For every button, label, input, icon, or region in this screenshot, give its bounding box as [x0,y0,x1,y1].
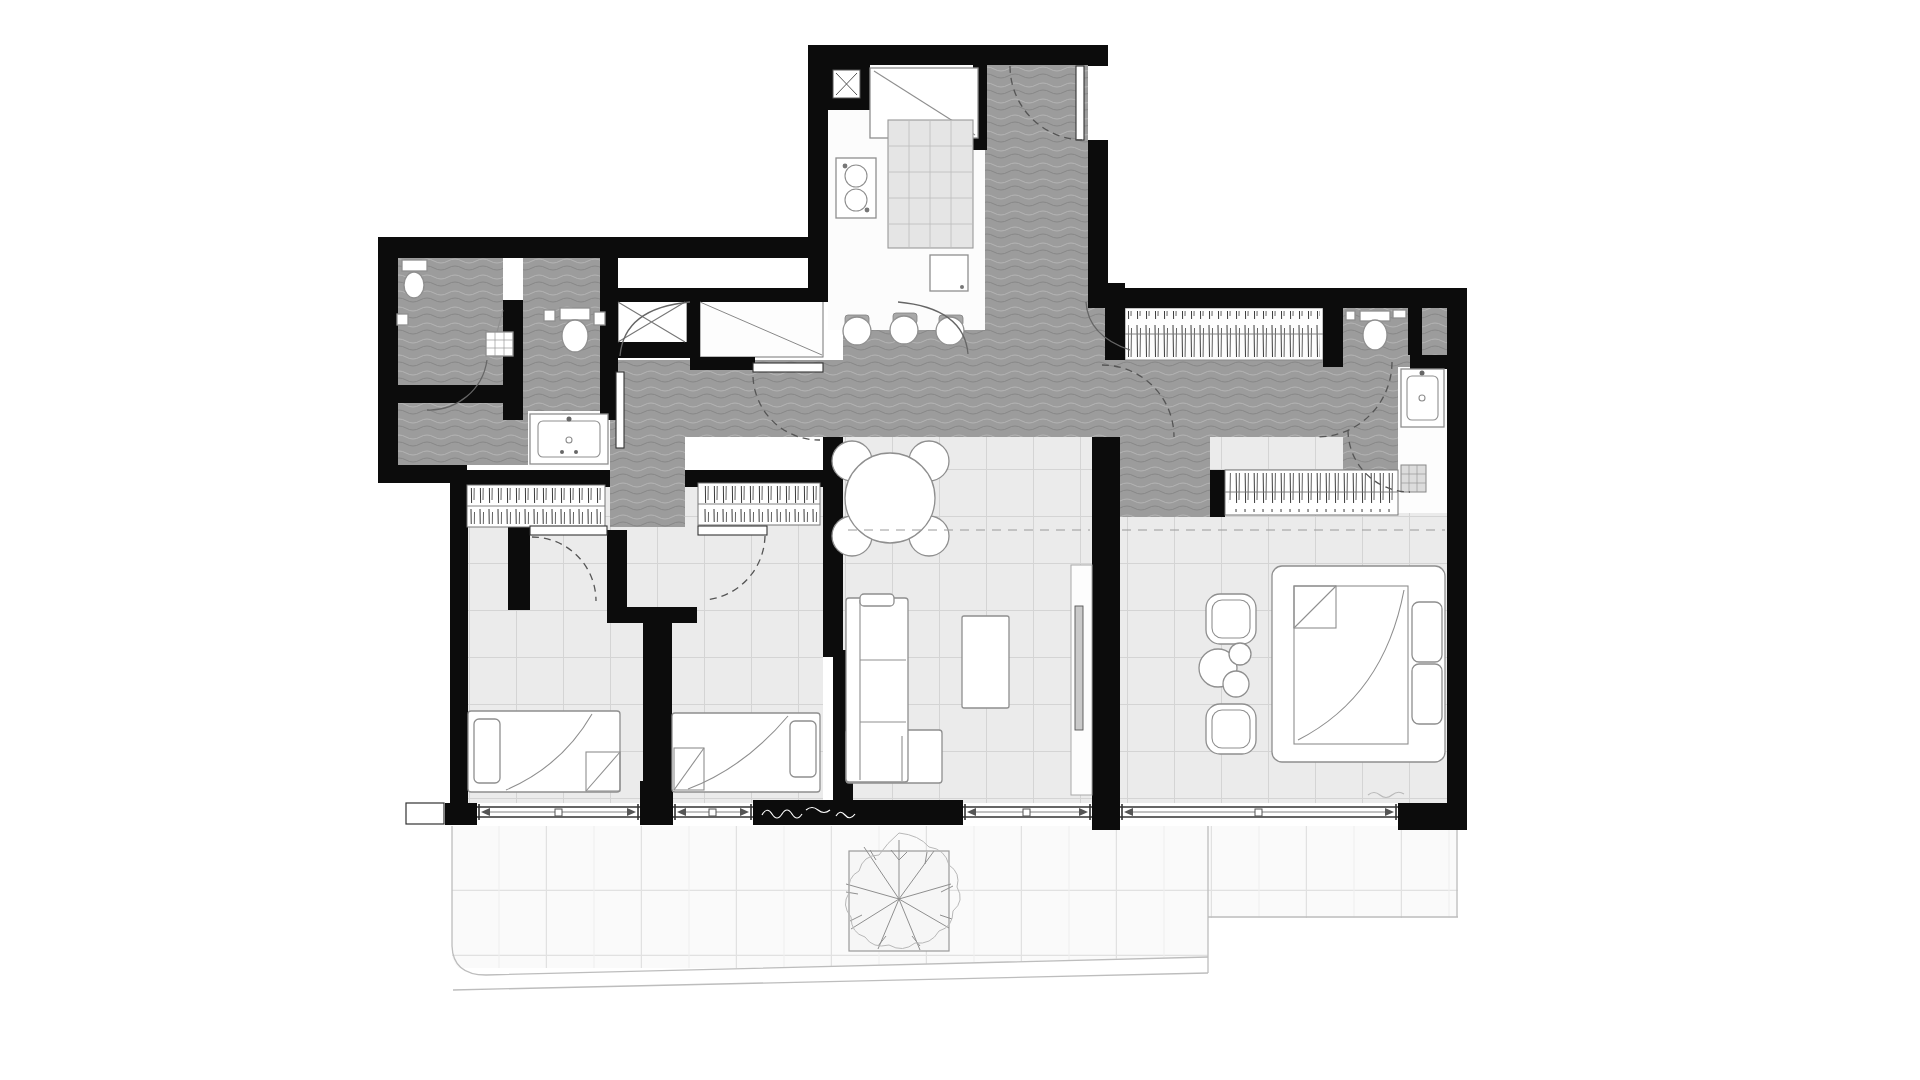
master-wc-accessory [1393,310,1406,318]
bedroom-1-door-leaf [530,526,607,535]
bed-1-pillow [474,719,500,783]
entry-hall-base [985,302,1088,362]
sofa-main [846,598,908,782]
wall-partition-cap [607,607,697,623]
armchair [1206,594,1256,644]
window-master [1120,803,1398,825]
shower-head-grid [486,332,513,356]
side-table-small [1229,643,1251,665]
tp-holder [397,314,408,325]
terrace-pavers-right [1208,826,1458,918]
master-wc-bowl [1363,320,1387,350]
master-wardrobe-hangers [1228,473,1395,512]
round-dining-table [845,453,935,543]
hall-door-leaf [753,363,823,372]
sofa-pillow [860,594,894,606]
wall-sw-cap [445,803,477,825]
armchair [1206,704,1256,754]
wall-bed1-north [465,470,610,487]
wall-wc-nook [1408,308,1422,355]
wall-west-step [378,465,467,483]
wall-shaft-bottom [600,342,700,358]
wall-closet-south [690,357,755,370]
wall-threshold-band [753,800,963,825]
master-pillow [1412,602,1442,662]
wc-toilet-tank [560,308,590,320]
wall-shaft-right [687,288,700,358]
toilet-bowl [404,272,424,298]
wall-living-east [1092,437,1120,830]
wc-door-leaf [616,372,624,448]
window-bedroom-1 [477,803,640,825]
wall-north [378,237,810,258]
floor-plan-page [0,0,1920,1080]
bar-stool [936,317,964,345]
vestibule-strip [610,437,685,527]
wall-shower-south [378,385,508,403]
bath-link-floor [1343,430,1398,470]
bar-stool [890,316,918,344]
wall-shower-wc-divider [503,300,523,420]
tv-screen [1075,606,1083,730]
facade-column [406,803,444,824]
wall-master-north [1088,288,1467,308]
master-entry-floor [1120,437,1210,517]
master-wc-accessory [1346,311,1355,320]
wall-kitchen-left [808,45,828,302]
corridor-center [823,360,1092,437]
wc-toilet-bowl [562,320,588,352]
wall-wardrobe-stub [1210,470,1225,517]
wall-bed1-pier [508,527,530,610]
wall-shaft-top [600,288,823,302]
wall-entry-right-lower [1088,140,1108,285]
knob-icon [865,208,870,213]
window-bedroom-2 [673,803,753,825]
entry-door-leaf [1076,66,1084,140]
tree-in-planter [845,833,960,951]
window-mid-tick [1023,809,1030,816]
cooktop-sink-unit [836,158,876,218]
floor-plan-canvas [0,0,1920,1080]
wall-vestibule-pier [607,530,627,607]
window-living [963,803,1092,825]
side-table-small [1223,671,1249,697]
wall-wc-east [600,258,618,420]
bed-2-pillow [790,721,816,777]
kitchen-island [888,120,973,248]
wall-window-pier [640,781,673,825]
wall-west-lower [450,483,468,803]
tap-dot [574,450,578,454]
bedroom-2-door-leaf [698,526,767,535]
wc-accessory [594,312,605,325]
terrace-pavers-left [452,826,1208,968]
window-mid-tick [555,809,562,816]
wall-closet-niche-right [1323,308,1343,367]
coffee-table [962,616,1009,708]
shower-drain-grid [1401,465,1426,492]
wall-se-corner [1398,803,1467,830]
window-mid-tick [709,809,716,816]
faucet-icon [567,417,572,422]
faucet-icon [1420,371,1425,376]
wall-kitchen-top [808,45,1108,65]
bar-stool [843,317,871,345]
wall-closet-niche-left [1105,308,1125,360]
wall-west-upper [378,237,398,483]
wc-accessory [544,310,555,321]
wc-room-floor [523,258,600,420]
master-pillow [1412,664,1442,724]
wall-bath-divider [1410,355,1467,369]
window-mid-tick [1255,809,1262,816]
tap-dot [560,450,564,454]
toilet-tank [402,260,427,271]
entry-hall-floor [985,65,1088,305]
wall-bedroom-partition [643,623,672,803]
wall-entry-right-upper [1088,45,1108,66]
appliance-dot [960,285,964,289]
knob-icon [843,164,848,169]
